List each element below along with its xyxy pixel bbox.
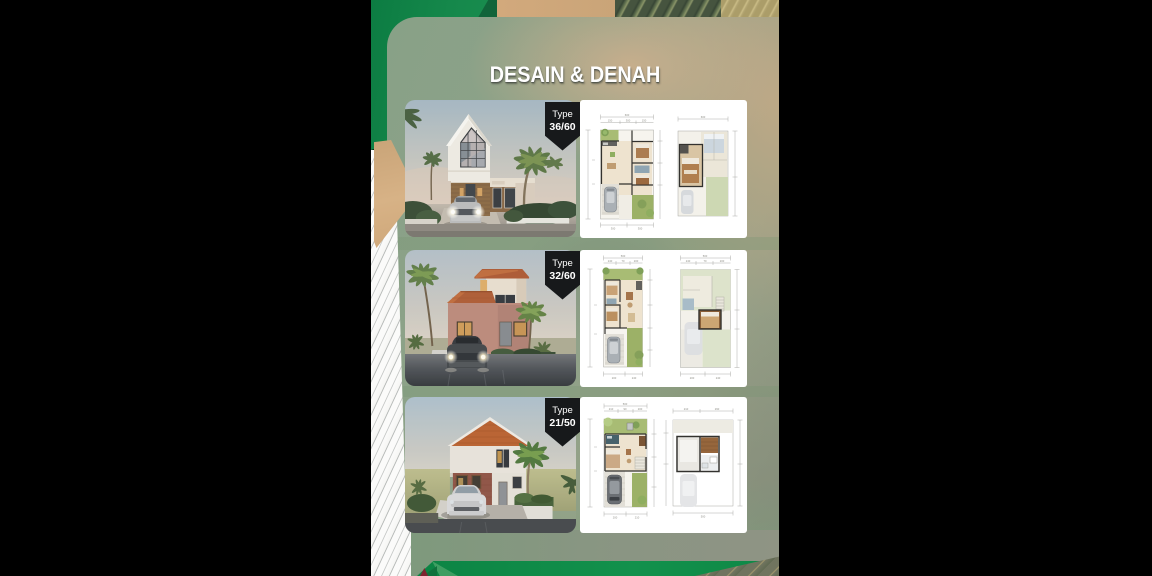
svg-text:200: 200 bbox=[720, 259, 725, 263]
svg-text:300: 300 bbox=[626, 118, 631, 122]
svg-text:70: 70 bbox=[704, 259, 707, 263]
svg-text:500: 500 bbox=[623, 402, 628, 406]
svg-text:600: 600 bbox=[701, 115, 706, 119]
svg-text:240: 240 bbox=[716, 376, 721, 380]
svg-text:150: 150 bbox=[642, 118, 647, 122]
svg-text:500: 500 bbox=[703, 254, 708, 258]
svg-text:240: 240 bbox=[608, 259, 613, 263]
svg-text:500: 500 bbox=[621, 254, 626, 258]
svg-text:240: 240 bbox=[686, 259, 691, 263]
svg-text:600: 600 bbox=[625, 113, 630, 117]
svg-text:210: 210 bbox=[684, 407, 689, 411]
svg-text:90: 90 bbox=[624, 407, 627, 411]
svg-text:290: 290 bbox=[715, 407, 720, 411]
svg-text:70: 70 bbox=[622, 259, 625, 263]
svg-text:200: 200 bbox=[612, 376, 617, 380]
svg-text:200: 200 bbox=[638, 407, 643, 411]
svg-text:300: 300 bbox=[638, 227, 643, 231]
svg-text:200: 200 bbox=[613, 516, 618, 520]
svg-text:300: 300 bbox=[611, 227, 616, 231]
svg-text:150: 150 bbox=[608, 118, 613, 122]
svg-text:240: 240 bbox=[632, 376, 637, 380]
svg-text:210: 210 bbox=[635, 516, 640, 520]
svg-text:500: 500 bbox=[701, 515, 706, 519]
svg-text:200: 200 bbox=[634, 259, 639, 263]
svg-text:200: 200 bbox=[690, 376, 695, 380]
svg-text:210: 210 bbox=[609, 407, 614, 411]
